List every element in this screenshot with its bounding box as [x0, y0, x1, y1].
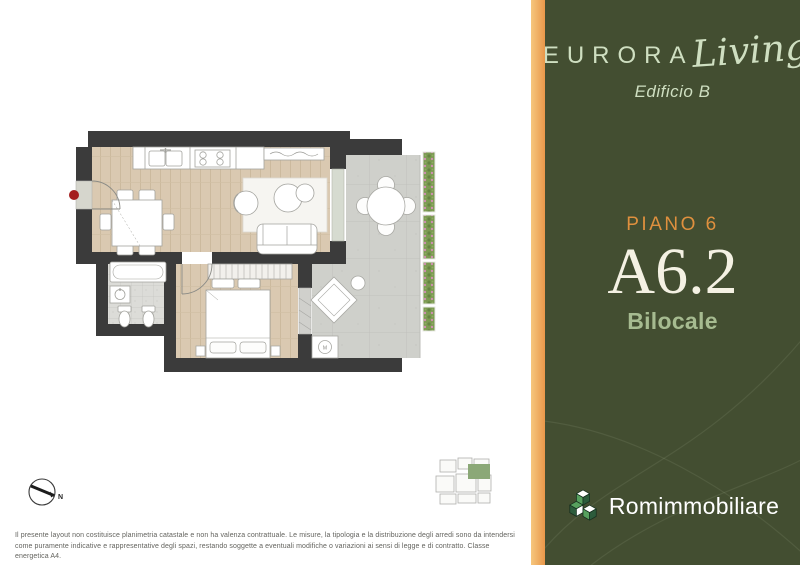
flyer: M [0, 0, 800, 565]
bath-sink-icon [110, 286, 130, 303]
kitchen [133, 147, 264, 169]
agency-logo: Romimmobiliare [545, 487, 800, 525]
key-plan [428, 452, 498, 514]
north-compass-icon: N [24, 474, 74, 514]
chair [139, 245, 155, 255]
disclaimer-text: Il presente layout non costituisce plani… [15, 531, 523, 563]
brand-script: Living [690, 28, 800, 73]
side-table [351, 276, 365, 290]
info-panel: EURORA Living Edificio B PIANO 6 A6.2 Bi… [545, 0, 800, 565]
floor-label: PIANO 6 [545, 214, 800, 236]
chair [139, 190, 155, 201]
romimmobiliare-cubes-icon [566, 487, 600, 525]
washing-machine-icon: M [312, 336, 338, 358]
nightstand [271, 346, 280, 356]
bed-bench [238, 279, 260, 288]
unit-code: A6.2 [545, 238, 800, 305]
toilet-icon [118, 306, 131, 327]
pillow [240, 342, 266, 353]
chair [117, 245, 133, 255]
entrance-marker-dot [69, 190, 79, 200]
unit-block: PIANO 6 A6.2 Bilocale [545, 214, 800, 335]
pillow [210, 342, 236, 353]
key-plan-highlight [468, 464, 490, 479]
orange-divider [531, 0, 545, 565]
disclaimer-line1: Il presente layout non costituisce plani… [15, 532, 515, 539]
wardrobe [208, 264, 292, 279]
planters [423, 152, 435, 331]
bed-bench [212, 279, 234, 288]
washer-label: M [323, 345, 327, 351]
building-label: Edificio B [545, 82, 800, 102]
living-terrace-glass-door [332, 169, 344, 241]
unit-type: Bilocale [545, 308, 800, 335]
sideboard [264, 148, 324, 160]
coffee-table [296, 184, 314, 202]
chair [163, 214, 174, 230]
chair [100, 214, 111, 230]
nightstand [196, 346, 205, 356]
kitchen-hob-icon [195, 150, 230, 167]
disclaimer-line2: come puramente indicative e rappresentat… [15, 543, 490, 561]
double-bed [206, 290, 270, 358]
bidet-icon [142, 306, 155, 327]
agency-name: Romimmobiliare [609, 493, 779, 520]
floorplan-area: M [0, 0, 531, 565]
brand-name: EURORA [545, 42, 694, 70]
chair [117, 190, 133, 201]
compass-label: N [58, 494, 63, 501]
brand-block: EURORA Living Edificio B [545, 32, 800, 102]
bathtub-icon [110, 262, 166, 282]
sofa [257, 224, 317, 254]
